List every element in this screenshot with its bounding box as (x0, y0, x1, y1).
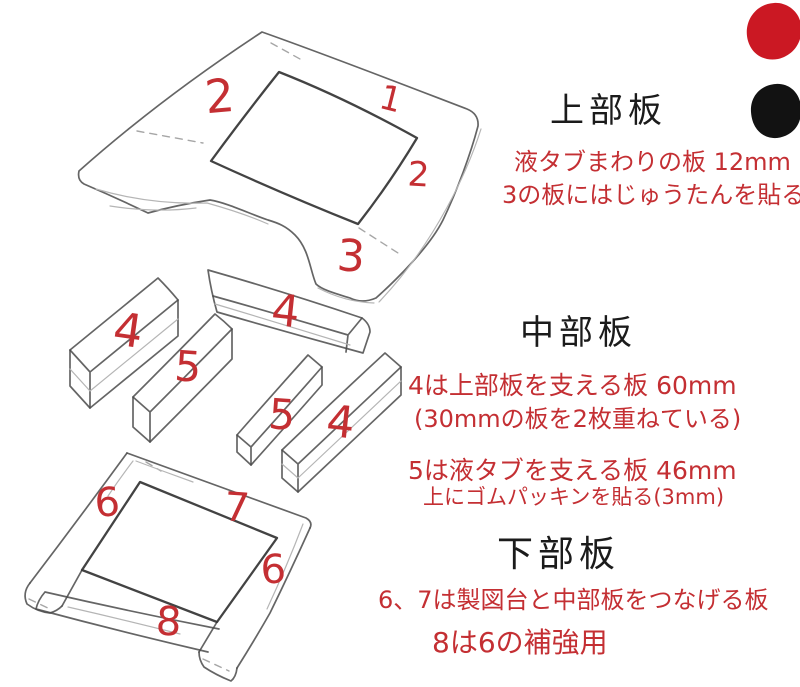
middle-section-note-3: 5は液タブを支える板 46mm (408, 456, 737, 485)
left-wing-fold-line (96, 189, 268, 224)
annotations: 上部板 液タブまわりの板 12mm 3の板にはじゅうたんを貼る 中部板 4は上部… (378, 91, 800, 659)
black-paint-blob (751, 84, 800, 138)
bottom-section-heading: 下部板 (497, 534, 620, 575)
part-label-5-left: 5 (173, 341, 203, 392)
part-label-5-right: 5 (267, 389, 297, 440)
top-section-note-1: 液タブまわりの板 12mm (514, 148, 791, 176)
part-label-6-right: 6 (259, 546, 287, 593)
strip8-edges (36, 592, 219, 652)
wing-seam-dashed-line (137, 131, 203, 143)
part-label-7: 7 (223, 484, 252, 532)
part-label-1: 1 (375, 77, 406, 121)
bottom-section-note-1: 6、7は製図台と中部板をつなげる板 (378, 586, 769, 614)
frame-left-bar-end-cap (25, 583, 62, 613)
middle-section-note-2: (30mmの板を2枚重ねている) (414, 405, 741, 433)
top-section-note-2: 3の板にはじゅうたんを貼る (502, 181, 800, 209)
frame-top-bar-thickness-line (136, 461, 193, 482)
top-seam-dashed-line (271, 43, 300, 59)
part-label-6-left: 6 (93, 479, 121, 526)
part-label-2-right: 2 (407, 154, 431, 195)
part-label-4-right: 4 (324, 396, 357, 450)
frame-left-bar-inner-lower-edge (62, 570, 82, 606)
middle-section-note-1: 4は上部板を支える板 60mm (408, 371, 737, 400)
color-swatches (747, 3, 800, 138)
part-label-3: 3 (335, 230, 366, 283)
middle-section-heading: 中部板 (520, 313, 637, 353)
bottom-section-note-2: 8は6の補強用 (432, 626, 608, 659)
part-label-4-cross: 4 (269, 285, 302, 339)
frame-top-bar-outer-edge (127, 453, 311, 528)
part-label-4-left: 4 (110, 301, 147, 359)
part-label-2-left: 2 (203, 68, 237, 124)
sketch-canvas: 1 2 2 3 4 5 4 5 4 6 7 6 8 上部板 液タブまわりの板 1… (0, 0, 800, 687)
red-paint-blob (747, 3, 800, 60)
part-label-8: 8 (155, 598, 183, 645)
left-wing-fold-line-2 (110, 206, 196, 210)
middle-section-note-4: 上にゴムパッキンを貼る(3mm) (423, 485, 724, 509)
exploded-diagram-svg: 1 2 2 3 4 5 4 5 4 6 7 6 8 上部板 液タブまわりの板 1… (0, 0, 800, 687)
top-section-heading: 上部板 (550, 91, 667, 131)
